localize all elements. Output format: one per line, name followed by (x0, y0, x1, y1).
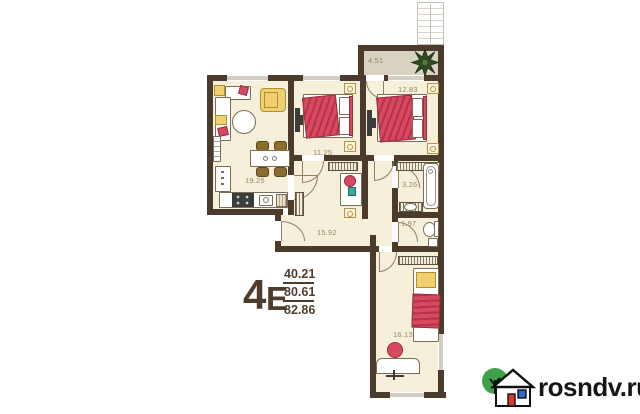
bed-duvet (376, 95, 416, 143)
room-label-balcony: 4.51 (368, 56, 383, 65)
floor-area-value: 80.61 (284, 285, 315, 299)
summary-divider (283, 282, 314, 284)
living-area-value: 40.21 (284, 267, 315, 281)
bed-pillow (412, 98, 423, 117)
wall (340, 75, 360, 81)
chair-stem (393, 370, 395, 380)
wall (394, 155, 444, 161)
room-label-bedroom-mid: 11.25 (313, 148, 332, 157)
nightstand (344, 141, 356, 152)
hall-cabinet (295, 192, 304, 216)
wall (424, 392, 446, 398)
plate (272, 156, 277, 161)
wall-hall-bottom (275, 246, 379, 252)
total-area-value: 82.86 (284, 303, 315, 317)
wall-entry (275, 241, 281, 252)
coffee-table (232, 110, 256, 134)
desk (376, 358, 420, 374)
dining-table (250, 150, 290, 167)
bed-pillow (412, 119, 423, 138)
wc-sink (428, 238, 438, 247)
room-label-wc: 1.97 (401, 219, 416, 228)
wall-hall-nook (362, 161, 368, 219)
house-with-tree-icon (480, 366, 536, 410)
room-label-hallway: 15.92 (317, 228, 337, 237)
room-label-bedroom-bottom: 16.13 (393, 330, 413, 339)
wardrobe (398, 256, 438, 265)
hall-ornament (344, 208, 356, 218)
bedroom-mid-window (303, 75, 340, 81)
wall-kitchen-bottom (207, 209, 283, 215)
site-name[interactable]: rosndv.ru (538, 372, 640, 403)
summary-divider (283, 300, 314, 302)
flower-vase (348, 187, 356, 196)
site-logo[interactable]: rosndv.ru (480, 366, 638, 412)
flower (344, 175, 356, 187)
sofa-cushion (215, 115, 227, 125)
fridge-dots (221, 171, 224, 185)
nightstand (427, 143, 439, 154)
room-label-kitchen: 19.25 (245, 176, 265, 185)
wardrobe (328, 162, 358, 171)
nightstand (427, 83, 439, 94)
room-label-bathroom: 3.26 (402, 180, 417, 189)
desk-chair (387, 342, 403, 358)
armchair-seat (264, 92, 278, 108)
wall-bath-wc-divider (392, 212, 444, 218)
wall (290, 155, 302, 161)
wall-bedroom-divider (360, 81, 366, 155)
ladder-center-line (430, 4, 431, 43)
dining-chair (274, 167, 287, 177)
floor-plan-page: 4.51 12.83 11.25 19.25 3.26 1.97 15.92 1… (0, 0, 640, 414)
sink-drain (263, 197, 269, 203)
lamp (430, 86, 436, 92)
bed-headboard (423, 96, 427, 140)
radiator (213, 136, 221, 162)
stove (232, 193, 254, 207)
drying-rack (276, 194, 287, 207)
kitchen-window (227, 75, 268, 81)
bed-duvet (302, 94, 340, 138)
lamp (430, 146, 436, 152)
lamp (347, 144, 353, 150)
plant-icon (410, 49, 440, 76)
chair-base (386, 375, 404, 377)
lamp (347, 86, 353, 92)
ornament-circle (347, 211, 353, 217)
nightstand (344, 83, 356, 94)
bed-pillow-yellow (416, 272, 436, 288)
bedroom-bottom-window (390, 392, 424, 398)
wall-bedroom-bottom-left (370, 252, 376, 398)
wall (370, 392, 390, 398)
bed-headboard (349, 96, 353, 136)
bed-duvet (411, 294, 440, 329)
plate (263, 156, 268, 161)
room-label-bedroom-top: 12.83 (398, 85, 418, 94)
wall (268, 75, 303, 81)
apartment-type-digit: 4 (243, 276, 266, 314)
washbasin (404, 203, 417, 211)
sofa-corner-cushion (214, 85, 225, 96)
bathtub-drain (428, 169, 433, 174)
tv-mount (372, 118, 376, 128)
wall-kitchen-right (288, 200, 294, 215)
toilet-tank (434, 221, 439, 237)
